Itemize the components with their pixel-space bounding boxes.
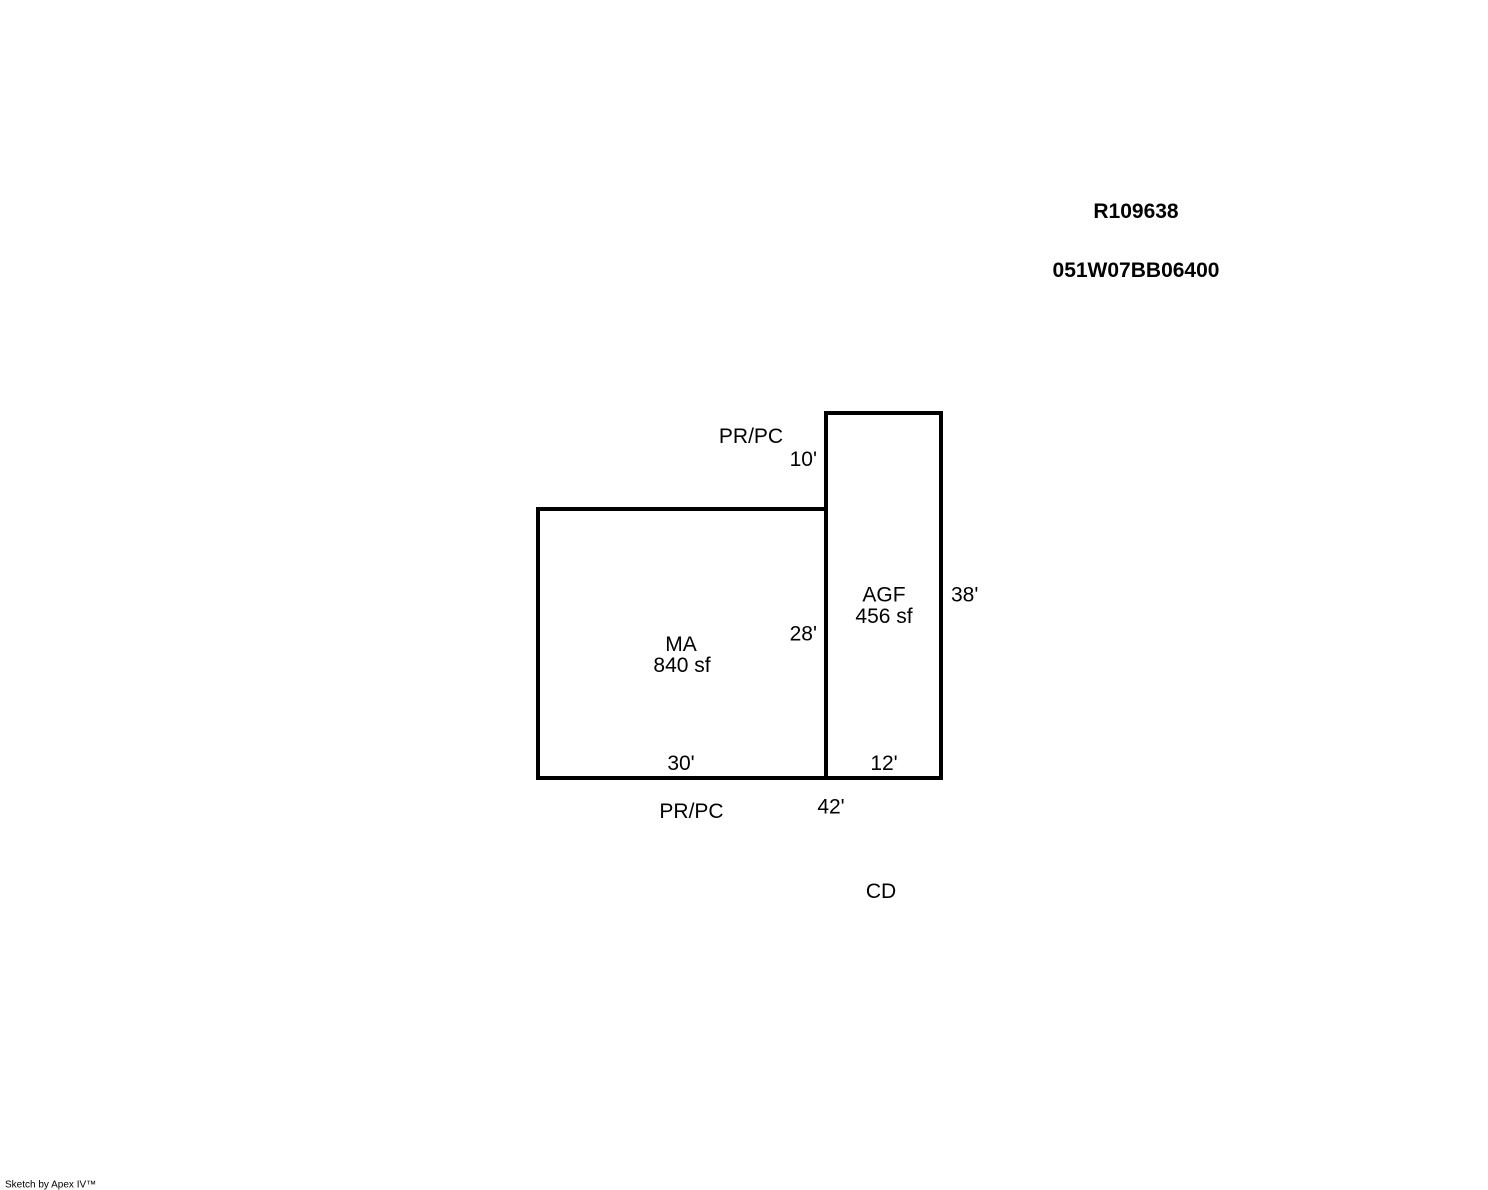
svg-text:Sketch by Apex IV™: Sketch by Apex IV™ [5,1180,96,1190]
svg-text:PR/PC: PR/PC [719,425,783,448]
svg-text:MA: MA [665,633,697,656]
svg-text:28': 28' [790,623,817,646]
svg-text:456 sf: 456 sf [855,605,912,628]
svg-text:42': 42' [817,796,844,819]
svg-text:R109638: R109638 [1093,200,1179,223]
svg-text:051W07BB06400: 051W07BB06400 [1053,259,1220,282]
svg-text:12': 12' [870,752,897,775]
svg-text:CD: CD [866,880,896,903]
svg-text:PR/PC: PR/PC [659,800,723,823]
svg-text:10': 10' [790,448,817,471]
svg-text:AGF: AGF [862,584,905,607]
svg-text:840 sf: 840 sf [653,654,710,677]
svg-text:38': 38' [951,584,978,607]
svg-text:30': 30' [667,752,694,775]
